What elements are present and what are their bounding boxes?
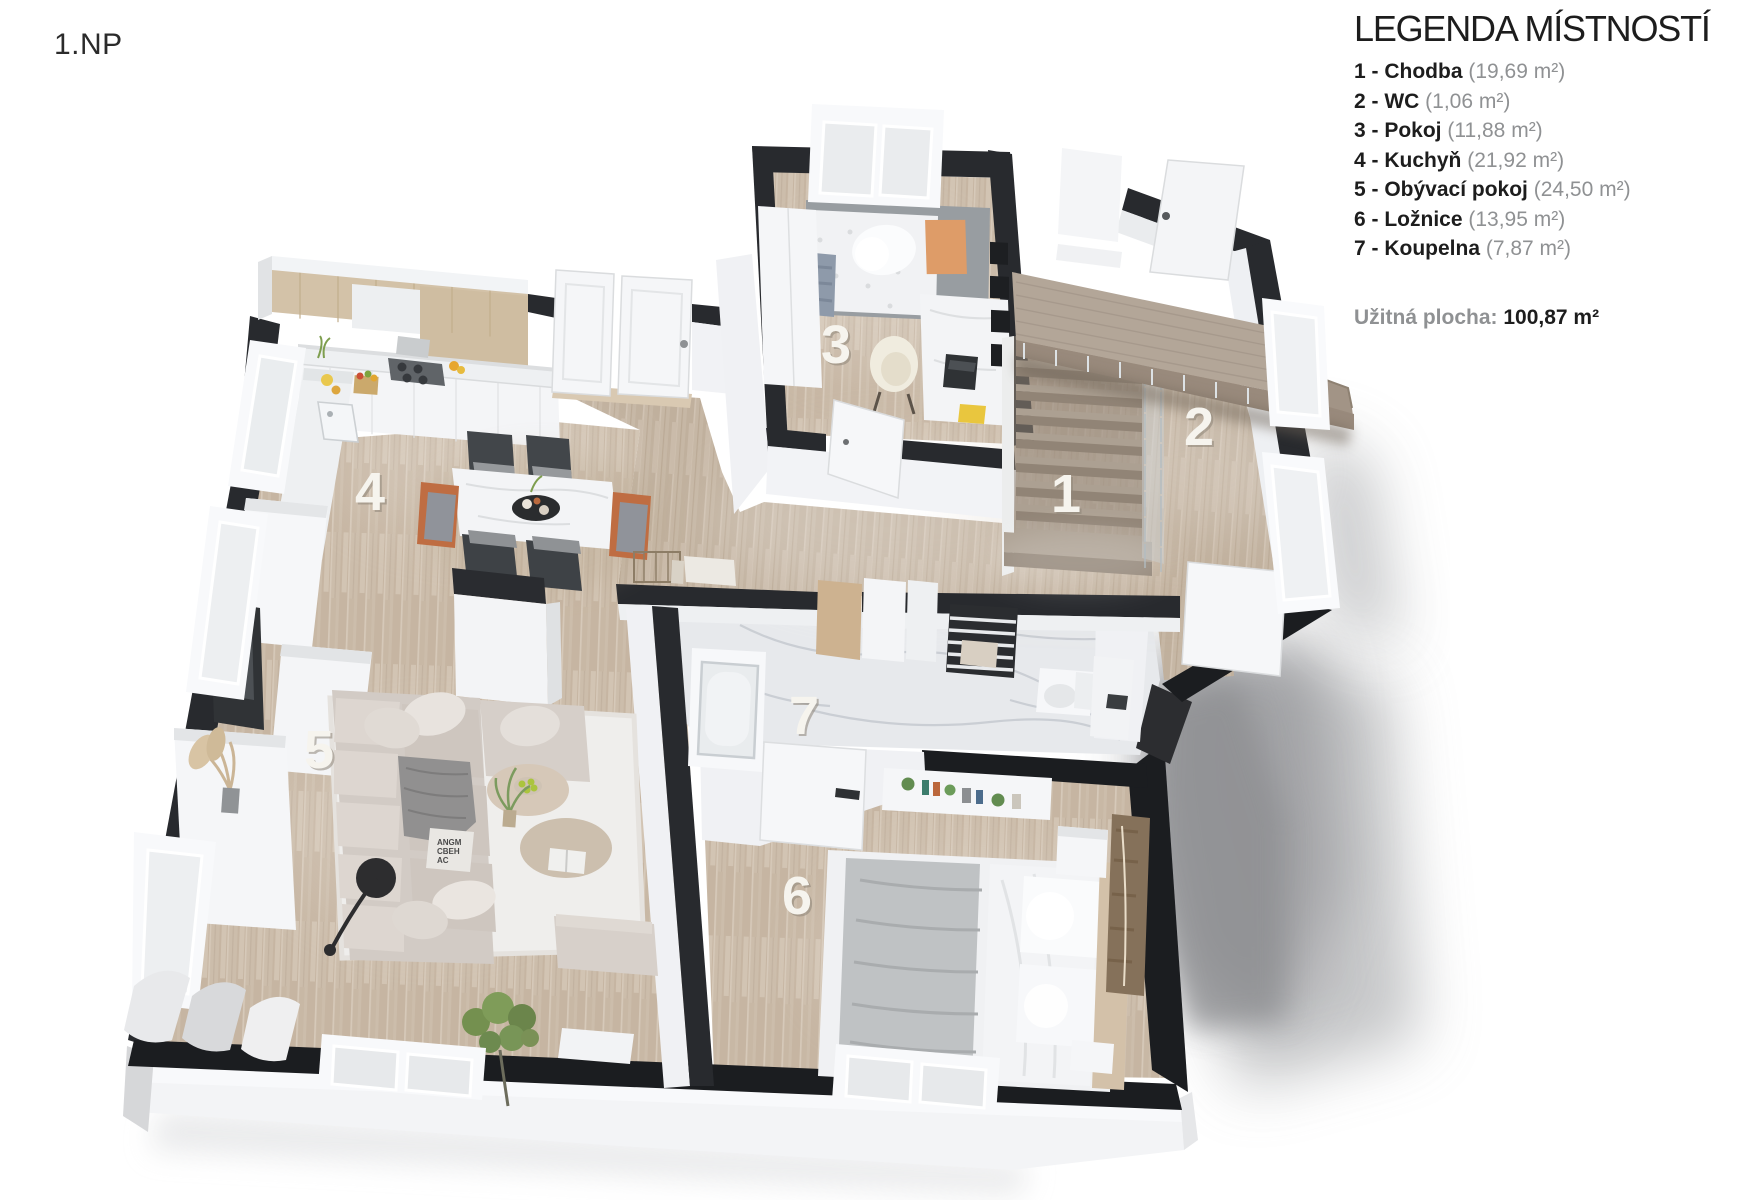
svg-text:3: 3	[821, 315, 851, 375]
svg-text:7: 7	[789, 686, 819, 746]
svg-text:2: 2	[1184, 397, 1214, 457]
svg-text:AC: AC	[437, 856, 449, 865]
svg-text:5: 5	[304, 720, 334, 780]
svg-text:CBEH: CBEH	[437, 847, 460, 856]
svg-text:6: 6	[782, 866, 812, 926]
svg-text:ANGM: ANGM	[437, 838, 462, 847]
svg-text:4: 4	[355, 462, 385, 522]
svg-text:1: 1	[1051, 464, 1081, 524]
